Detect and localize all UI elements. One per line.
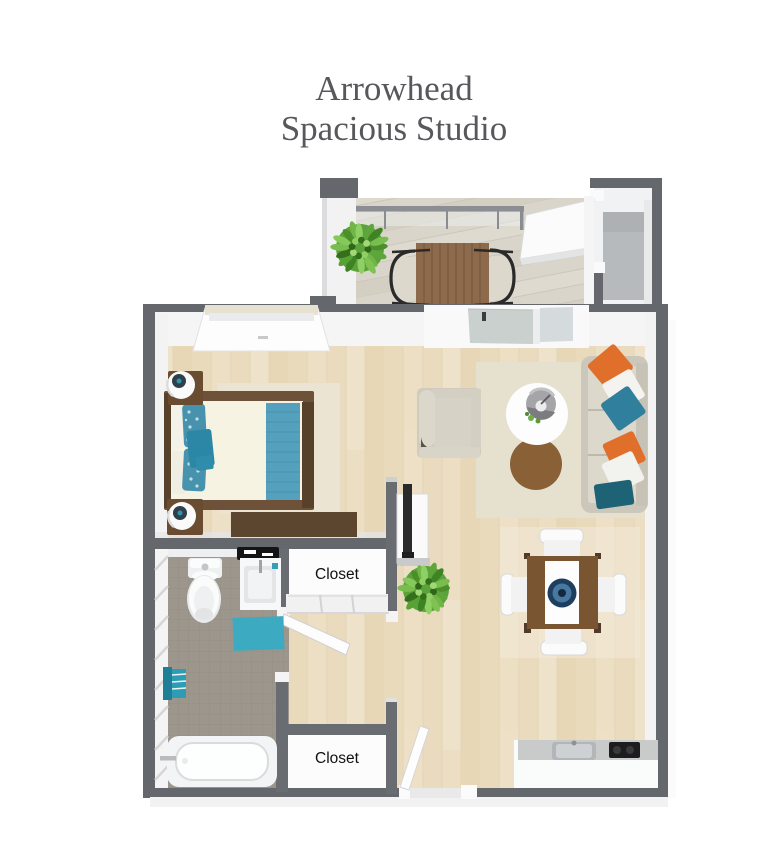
svg-text:Closet: Closet bbox=[315, 750, 360, 767]
svg-text:Closet: Closet bbox=[315, 566, 360, 583]
